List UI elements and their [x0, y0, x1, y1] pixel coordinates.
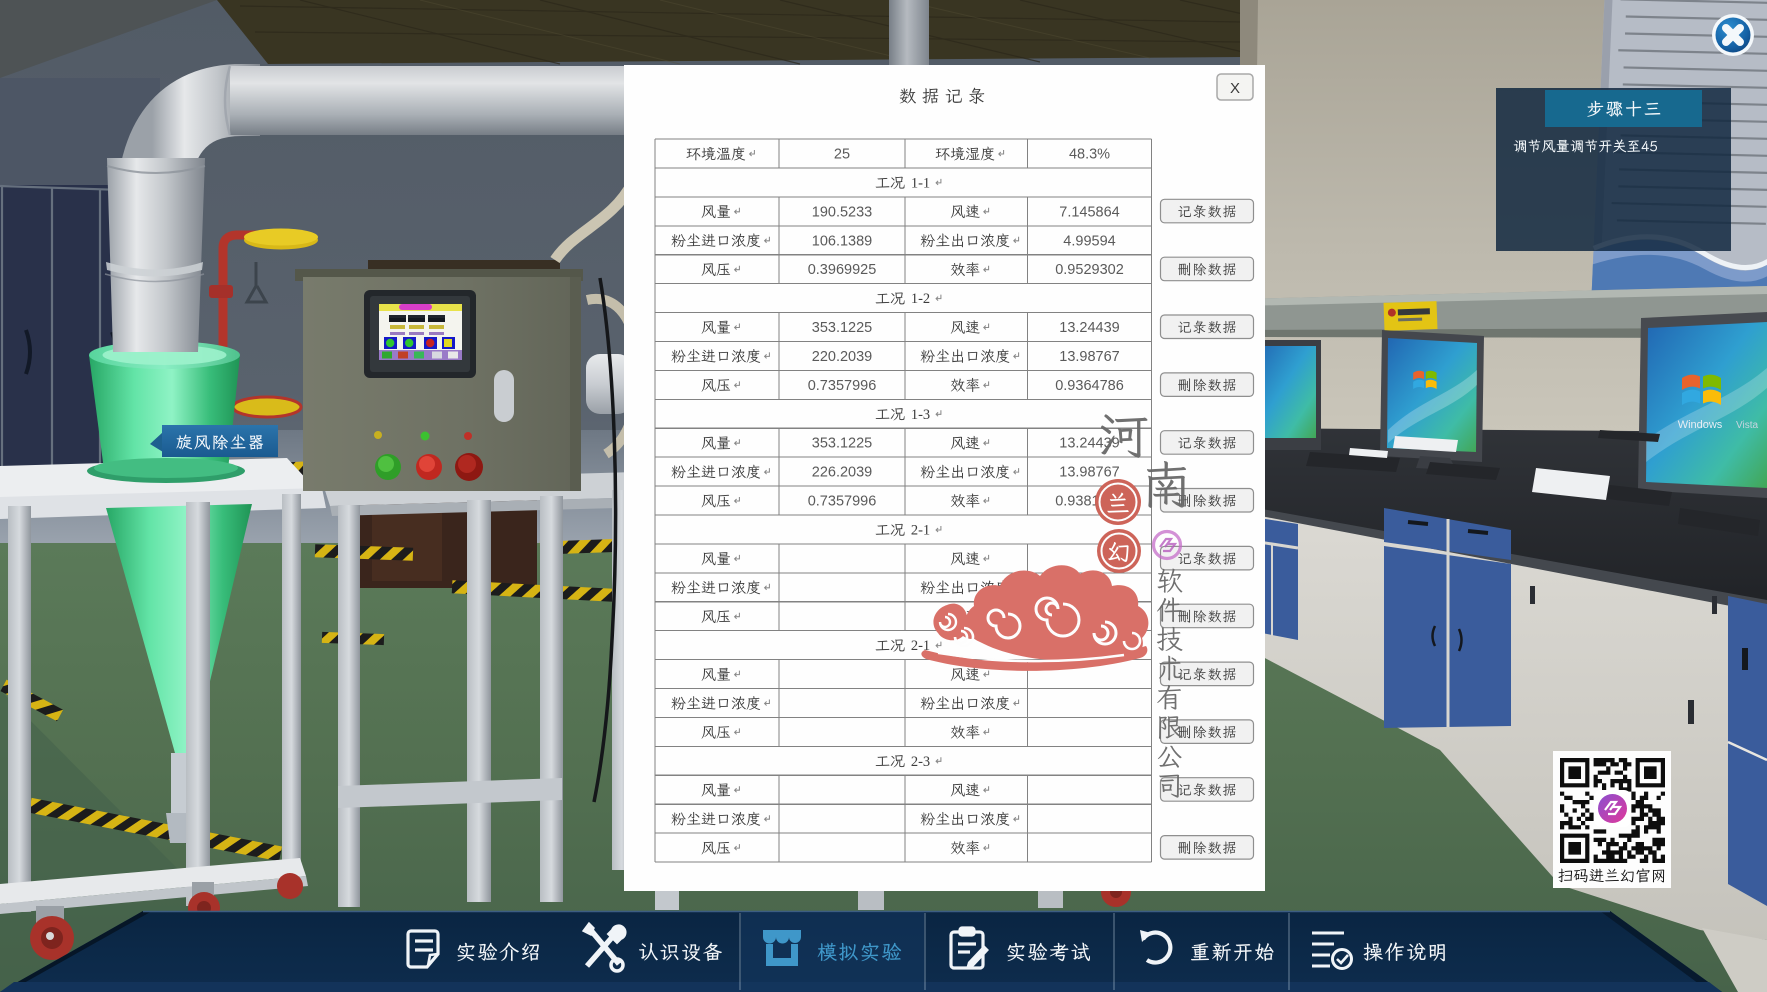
svg-text:7.145864: 7.145864: [1059, 204, 1119, 220]
svg-text:25: 25: [834, 147, 850, 163]
svg-text:4.99594: 4.99594: [1063, 233, 1115, 249]
svg-text:13.24439: 13.24439: [1059, 320, 1119, 336]
svg-text:190.5233: 190.5233: [812, 204, 872, 220]
svg-text:1-2: 1-2: [911, 291, 930, 307]
svg-text:13.98767: 13.98767: [1059, 465, 1119, 481]
svg-text:220.2039: 220.2039: [812, 349, 872, 365]
svg-text:353.1225: 353.1225: [812, 436, 872, 452]
svg-text:48.3%: 48.3%: [1069, 147, 1110, 163]
svg-text:0.7357996: 0.7357996: [808, 494, 877, 510]
svg-text:2-1: 2-1: [911, 523, 930, 539]
svg-text:0.7357996: 0.7357996: [808, 378, 877, 394]
svg-text:353.1225: 353.1225: [812, 320, 872, 336]
svg-text:0.9364786: 0.9364786: [1055, 378, 1124, 394]
svg-text:0.9529302: 0.9529302: [1055, 262, 1124, 278]
svg-text:Vista: Vista: [1736, 420, 1758, 431]
svg-text:226.2039: 226.2039: [812, 465, 872, 481]
svg-text:Windows: Windows: [1678, 419, 1723, 431]
svg-text:X: X: [1230, 80, 1240, 97]
svg-text:2-3: 2-3: [911, 754, 930, 770]
svg-text:1-1: 1-1: [911, 175, 930, 191]
svg-text:13.98767: 13.98767: [1059, 349, 1119, 365]
svg-text:0.3969925: 0.3969925: [808, 262, 877, 278]
svg-text:1-3: 1-3: [911, 407, 930, 423]
svg-text:106.1389: 106.1389: [812, 233, 872, 249]
